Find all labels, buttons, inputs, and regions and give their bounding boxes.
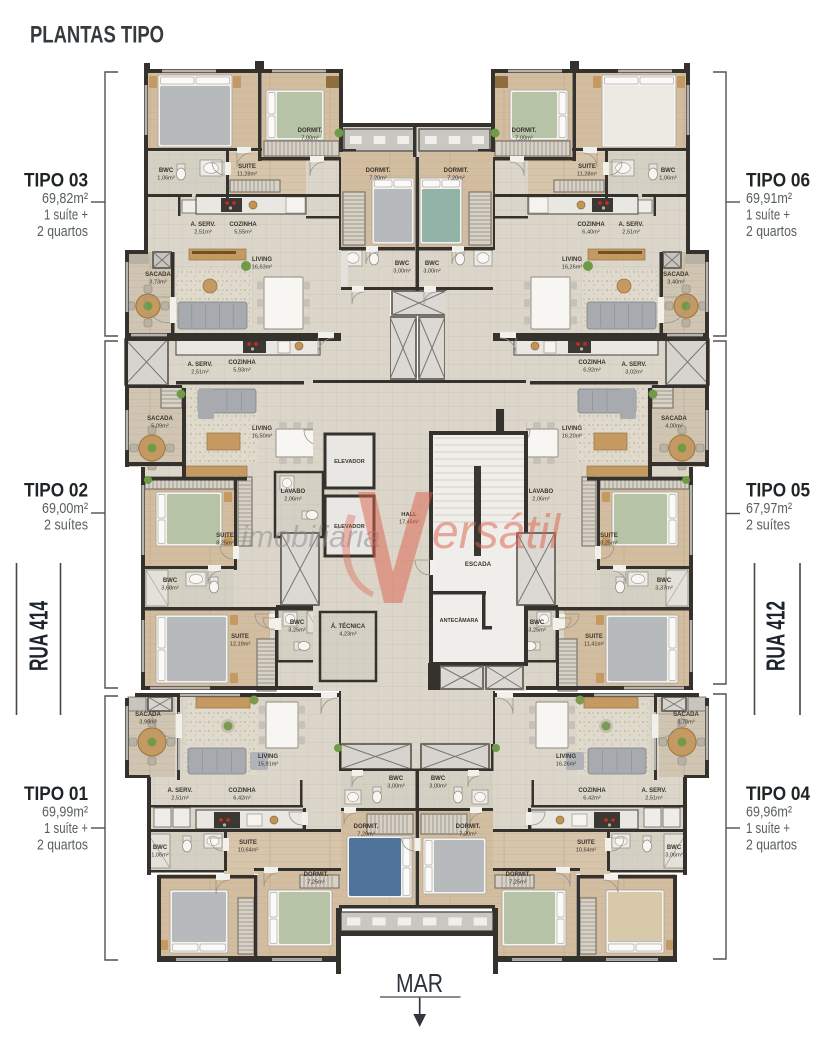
- svg-text:SUITE: SUITE: [578, 164, 596, 170]
- svg-text:ersátil: ersátil: [432, 506, 561, 559]
- svg-text:LIVING: LIVING: [562, 426, 582, 432]
- svg-text:10,64m²: 10,64m²: [238, 848, 259, 854]
- svg-text:LIVING: LIVING: [252, 257, 272, 263]
- svg-text:2,51m²: 2,51m²: [194, 230, 212, 236]
- svg-text:TIPO 04: TIPO 04: [746, 784, 810, 805]
- svg-text:69,00m²: 69,00m²: [42, 500, 88, 517]
- svg-text:BWC: BWC: [530, 620, 545, 626]
- svg-text:69,91m²: 69,91m²: [746, 190, 792, 207]
- svg-text:DORMIT.: DORMIT.: [354, 824, 379, 830]
- svg-text:PLANTAS TIPO: PLANTAS TIPO: [30, 22, 164, 49]
- svg-text:LIVING: LIVING: [562, 257, 582, 263]
- svg-text:3,25m²: 3,25m²: [528, 628, 546, 634]
- svg-text:7,20m²: 7,20m²: [357, 832, 375, 838]
- svg-text:6,42m²: 6,42m²: [583, 796, 601, 802]
- svg-text:A. SERV.: A. SERV.: [187, 362, 212, 368]
- svg-text:16,20m²: 16,20m²: [562, 434, 583, 440]
- svg-text:DORMIT.: DORMIT.: [366, 168, 391, 174]
- svg-text:15,91m²: 15,91m²: [258, 762, 279, 768]
- svg-text:3,00m²: 3,00m²: [429, 784, 447, 790]
- svg-text:11,28m²: 11,28m²: [577, 172, 597, 178]
- svg-text:3,00m²: 3,00m²: [393, 269, 411, 275]
- svg-text:1 suíte +: 1 suíte +: [44, 207, 88, 224]
- svg-text:2 quartos: 2 quartos: [37, 223, 88, 240]
- svg-text:4,23m²: 4,23m²: [339, 632, 357, 638]
- svg-text:TIPO 01: TIPO 01: [24, 784, 88, 805]
- svg-text:2,51m²: 2,51m²: [645, 796, 663, 802]
- svg-text:16,26m²: 16,26m²: [556, 762, 577, 768]
- svg-text:BWC: BWC: [163, 578, 178, 584]
- svg-text:LAVABO: LAVABO: [281, 489, 306, 495]
- svg-text:DORMIT.: DORMIT.: [304, 872, 329, 878]
- svg-text:3,99m²: 3,99m²: [139, 720, 157, 726]
- svg-text:7,20m²: 7,20m²: [459, 832, 477, 838]
- svg-text:2,51m²: 2,51m²: [191, 370, 209, 376]
- svg-text:SACADA: SACADA: [673, 712, 699, 718]
- svg-text:SACADA: SACADA: [145, 272, 171, 278]
- svg-text:Á. TÉCNICA: Á. TÉCNICA: [331, 622, 366, 630]
- svg-text:5,09m²: 5,09m²: [151, 424, 169, 430]
- svg-text:SUITE: SUITE: [600, 533, 618, 539]
- svg-text:RUA 412: RUA 412: [761, 601, 791, 671]
- svg-text:COZINHA: COZINHA: [578, 360, 606, 366]
- svg-text:DORMIT.: DORMIT.: [456, 824, 481, 830]
- svg-text:3,00m²: 3,00m²: [423, 269, 441, 275]
- svg-text:A. SERV.: A. SERV.: [167, 788, 192, 794]
- svg-text:8,25m²: 8,25m²: [600, 541, 618, 547]
- svg-text:1,06m²: 1,06m²: [659, 176, 677, 182]
- svg-text:BWC: BWC: [153, 845, 168, 851]
- svg-text:ELEVADOR: ELEVADOR: [334, 459, 365, 465]
- svg-text:SACADA: SACADA: [135, 712, 161, 718]
- svg-text:COZINHA: COZINHA: [229, 222, 257, 228]
- svg-text:RUA 414: RUA 414: [24, 601, 54, 671]
- svg-text:LIVING: LIVING: [258, 754, 278, 760]
- svg-text:1 suíte +: 1 suíte +: [44, 820, 88, 837]
- svg-text:TIPO 05: TIPO 05: [746, 481, 810, 502]
- svg-text:BWC: BWC: [661, 168, 676, 174]
- svg-text:ANTECÂMARA: ANTECÂMARA: [440, 617, 479, 624]
- svg-text:2 quartos: 2 quartos: [746, 223, 797, 240]
- svg-text:COZINHA: COZINHA: [577, 222, 605, 228]
- svg-text:1 suíte +: 1 suíte +: [746, 820, 790, 837]
- svg-text:A. SERV.: A. SERV.: [190, 222, 215, 228]
- svg-text:SUITE: SUITE: [238, 164, 256, 170]
- svg-text:LAVABO: LAVABO: [529, 489, 554, 495]
- svg-text:BWC: BWC: [395, 261, 410, 267]
- svg-text:11,41m²: 11,41m²: [584, 642, 604, 648]
- svg-text:ESCADA: ESCADA: [465, 561, 492, 568]
- svg-text:COZINHA: COZINHA: [228, 788, 256, 794]
- svg-text:11,28m²: 11,28m²: [237, 172, 257, 178]
- svg-text:5,93m²: 5,93m²: [233, 368, 251, 374]
- svg-text:7,20m²: 7,20m²: [369, 176, 387, 182]
- svg-text:6,40m²: 6,40m²: [582, 230, 600, 236]
- svg-text:DORMIT.: DORMIT.: [298, 128, 323, 134]
- svg-text:2 quartos: 2 quartos: [37, 837, 88, 854]
- svg-text:imobiliária: imobiliária: [241, 519, 381, 554]
- svg-text:MAR: MAR: [396, 968, 443, 998]
- svg-text:DORMIT.: DORMIT.: [444, 168, 469, 174]
- svg-text:1,06m²: 1,06m²: [157, 176, 175, 182]
- svg-text:16,26m²: 16,26m²: [562, 265, 583, 271]
- svg-text:7,00m²: 7,00m²: [515, 136, 533, 142]
- svg-text:SUITE: SUITE: [216, 533, 234, 539]
- svg-text:12,19m²: 12,19m²: [230, 642, 251, 648]
- svg-text:BWC: BWC: [425, 261, 440, 267]
- svg-text:1 suíte +: 1 suíte +: [746, 207, 790, 224]
- svg-text:7,25m²: 7,25m²: [509, 880, 527, 886]
- svg-text:69,82m²: 69,82m²: [42, 190, 88, 207]
- svg-text:BWC: BWC: [431, 776, 446, 782]
- svg-text:TIPO 03: TIPO 03: [24, 171, 88, 192]
- svg-text:SUITE: SUITE: [585, 634, 603, 640]
- svg-text:A. SERV.: A. SERV.: [621, 362, 646, 368]
- svg-text:LIVING: LIVING: [556, 754, 576, 760]
- svg-text:BWC: BWC: [290, 620, 305, 626]
- svg-text:3,06m²: 3,06m²: [665, 853, 683, 859]
- svg-text:SUITE: SUITE: [231, 634, 249, 640]
- svg-text:8,25m²: 8,25m²: [216, 541, 234, 547]
- svg-text:COZINHA: COZINHA: [228, 360, 256, 366]
- svg-text:SACADA: SACADA: [663, 272, 689, 278]
- svg-text:TIPO 02: TIPO 02: [24, 481, 88, 502]
- svg-text:2,51m²: 2,51m²: [171, 796, 189, 802]
- svg-text:2 suítes: 2 suítes: [44, 517, 88, 534]
- svg-text:69,96m²: 69,96m²: [746, 804, 792, 821]
- svg-text:SACADA: SACADA: [661, 416, 687, 422]
- svg-text:69,99m²: 69,99m²: [42, 804, 88, 821]
- svg-text:DORMIT.: DORMIT.: [512, 128, 537, 134]
- svg-text:2 suítes: 2 suítes: [746, 517, 790, 534]
- svg-text:A. SERV.: A. SERV.: [618, 222, 643, 228]
- svg-text:5,55m²: 5,55m²: [234, 230, 252, 236]
- svg-text:SUITE: SUITE: [577, 840, 595, 846]
- svg-text:2,06m²: 2,06m²: [532, 497, 550, 503]
- svg-text:BWC: BWC: [389, 776, 404, 782]
- svg-text:6,92m²: 6,92m²: [583, 368, 601, 374]
- svg-text:BWC: BWC: [667, 845, 682, 851]
- svg-text:3,25m²: 3,25m²: [288, 628, 306, 634]
- svg-text:LIVING: LIVING: [252, 426, 272, 432]
- svg-text:7,00m²: 7,00m²: [301, 136, 319, 142]
- svg-text:67,97m²: 67,97m²: [746, 500, 792, 517]
- svg-text:7,20m²: 7,20m²: [447, 176, 465, 182]
- svg-text:3,73m²: 3,73m²: [149, 280, 167, 286]
- svg-text:3,40m²: 3,40m²: [667, 280, 685, 286]
- svg-text:6,42m²: 6,42m²: [233, 796, 251, 802]
- svg-text:BWC: BWC: [159, 168, 174, 174]
- svg-text:COZINHA: COZINHA: [578, 788, 606, 794]
- svg-text:10,64m²: 10,64m²: [576, 848, 597, 854]
- svg-text:2 quartos: 2 quartos: [746, 837, 797, 854]
- svg-text:1,06m²: 1,06m²: [151, 853, 169, 859]
- svg-text:A. SERV.: A. SERV.: [641, 788, 666, 794]
- svg-text:3,02m²: 3,02m²: [625, 370, 643, 376]
- svg-text:16,50m²: 16,50m²: [252, 434, 273, 440]
- svg-text:3,78m²: 3,78m²: [677, 720, 695, 726]
- svg-text:TIPO 06: TIPO 06: [746, 171, 810, 192]
- svg-text:3,00m²: 3,00m²: [387, 784, 405, 790]
- svg-text:SUITE: SUITE: [239, 840, 257, 846]
- svg-text:7,25m²: 7,25m²: [307, 880, 325, 886]
- svg-text:3,68m²: 3,68m²: [161, 586, 179, 592]
- svg-text:3,37m²: 3,37m²: [655, 586, 673, 592]
- svg-text:SACADA: SACADA: [147, 416, 173, 422]
- svg-text:BWC: BWC: [657, 578, 672, 584]
- svg-text:2,51m²: 2,51m²: [622, 230, 640, 236]
- svg-text:2,06m²: 2,06m²: [284, 497, 302, 503]
- svg-text:16,63m²: 16,63m²: [252, 265, 273, 271]
- svg-text:4,00m²: 4,00m²: [665, 424, 683, 430]
- svg-text:DORMIT.: DORMIT.: [506, 872, 531, 878]
